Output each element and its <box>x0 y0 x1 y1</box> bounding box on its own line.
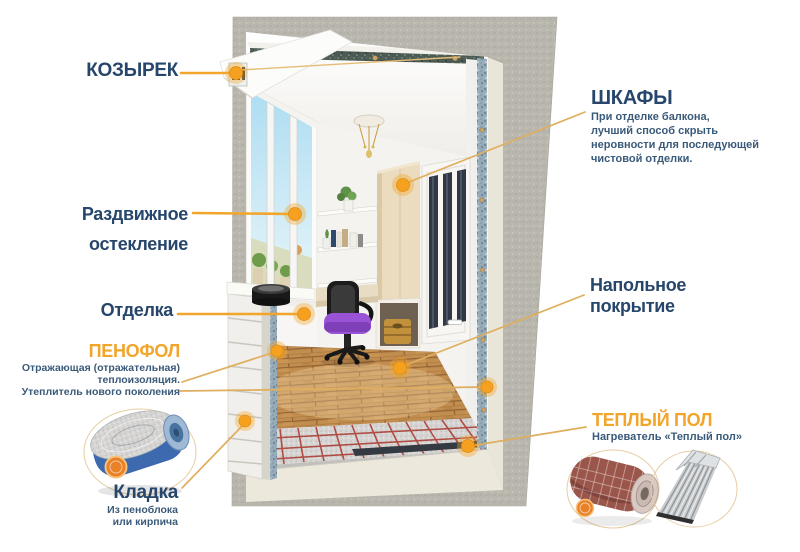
masonry-blocks <box>228 294 277 480</box>
label-floor-covering-line1: Напольное <box>590 275 740 296</box>
label-teply-pol: ТЕПЛЫЙ ПОЛ Нагреватель «Теплый пол» <box>592 410 782 443</box>
heating-mat-roll-photo <box>566 450 663 528</box>
label-teply-pol-desc-1: Нагреватель «Теплый пол» <box>592 431 782 443</box>
wicker-basket <box>384 319 411 344</box>
label-penofol-title: ПЕНОФОЛ <box>6 341 180 362</box>
label-shkafy: ШКАФЫ При отделке балкона, лучший способ… <box>591 87 781 166</box>
label-sliding-glazing-line2: остекление <box>36 229 188 259</box>
label-sliding-glazing-line1: Раздвижное <box>36 199 188 229</box>
label-otdelka: Отделка <box>56 300 173 321</box>
connector-glazing <box>193 213 293 214</box>
label-teply-pol-title: ТЕПЛЫЙ ПОЛ <box>592 410 782 431</box>
dot-otdelka <box>293 303 315 325</box>
label-kladka-title: Кладка <box>52 482 178 504</box>
label-floor-covering-line2: покрытие <box>590 296 740 317</box>
label-penofol-desc-3: Утеплитель нового поколения <box>6 386 180 398</box>
label-sliding-glazing: Раздвижное остекление <box>36 199 188 259</box>
label-shkafy-desc-4: чистовой отделки. <box>591 152 781 166</box>
dot-kladka <box>235 411 255 431</box>
label-shkafy-title: ШКАФЫ <box>591 87 781 110</box>
penofol-badge <box>106 457 127 478</box>
label-penofol: ПЕНОФОЛ Отражающая (отражательная) тепло… <box>6 341 180 399</box>
dot-penofol-right <box>477 377 497 397</box>
label-penofol-desc-1: Отражающая (отражательная) <box>6 362 180 374</box>
dot-shkafy <box>392 174 414 196</box>
label-kladka-desc-2: или кирпича <box>52 516 178 528</box>
door-handle <box>448 320 462 325</box>
dot-kozyrek <box>225 62 247 84</box>
label-otdelka-title: Отделка <box>56 300 173 321</box>
label-floor-covering: Напольное покрытие <box>590 275 740 317</box>
label-kozyrek-title: КОЗЫРЕК <box>56 60 178 82</box>
label-penofol-desc-2: теплоизоляция. <box>6 374 180 386</box>
label-kladka: Кладка Из пеноблока или кирпича <box>52 482 178 528</box>
dot-teply-pol <box>457 435 479 457</box>
label-kladka-desc-1: Из пеноблока <box>52 504 178 516</box>
heating-mat-badge <box>577 500 594 517</box>
dot-napolnoe <box>389 357 411 379</box>
balcony-infographic: КОЗЫРЕК Раздвижное остекление Отделка ПЕ… <box>0 0 800 552</box>
black-pot <box>252 284 290 306</box>
dot-penofol-left <box>267 341 287 361</box>
balcony-door <box>422 157 470 344</box>
label-shkafy-desc-2: лучший способ скрыть <box>591 124 781 138</box>
foil-sheet-photo <box>651 450 737 527</box>
label-shkafy-desc-3: неровности для последующей <box>591 138 781 152</box>
sliding-window <box>246 84 317 308</box>
label-kozyrek: КОЗЫРЕК <box>56 60 178 82</box>
label-shkafy-desc-1: При отделке балкона, <box>591 110 781 124</box>
dot-glazing <box>284 203 306 225</box>
